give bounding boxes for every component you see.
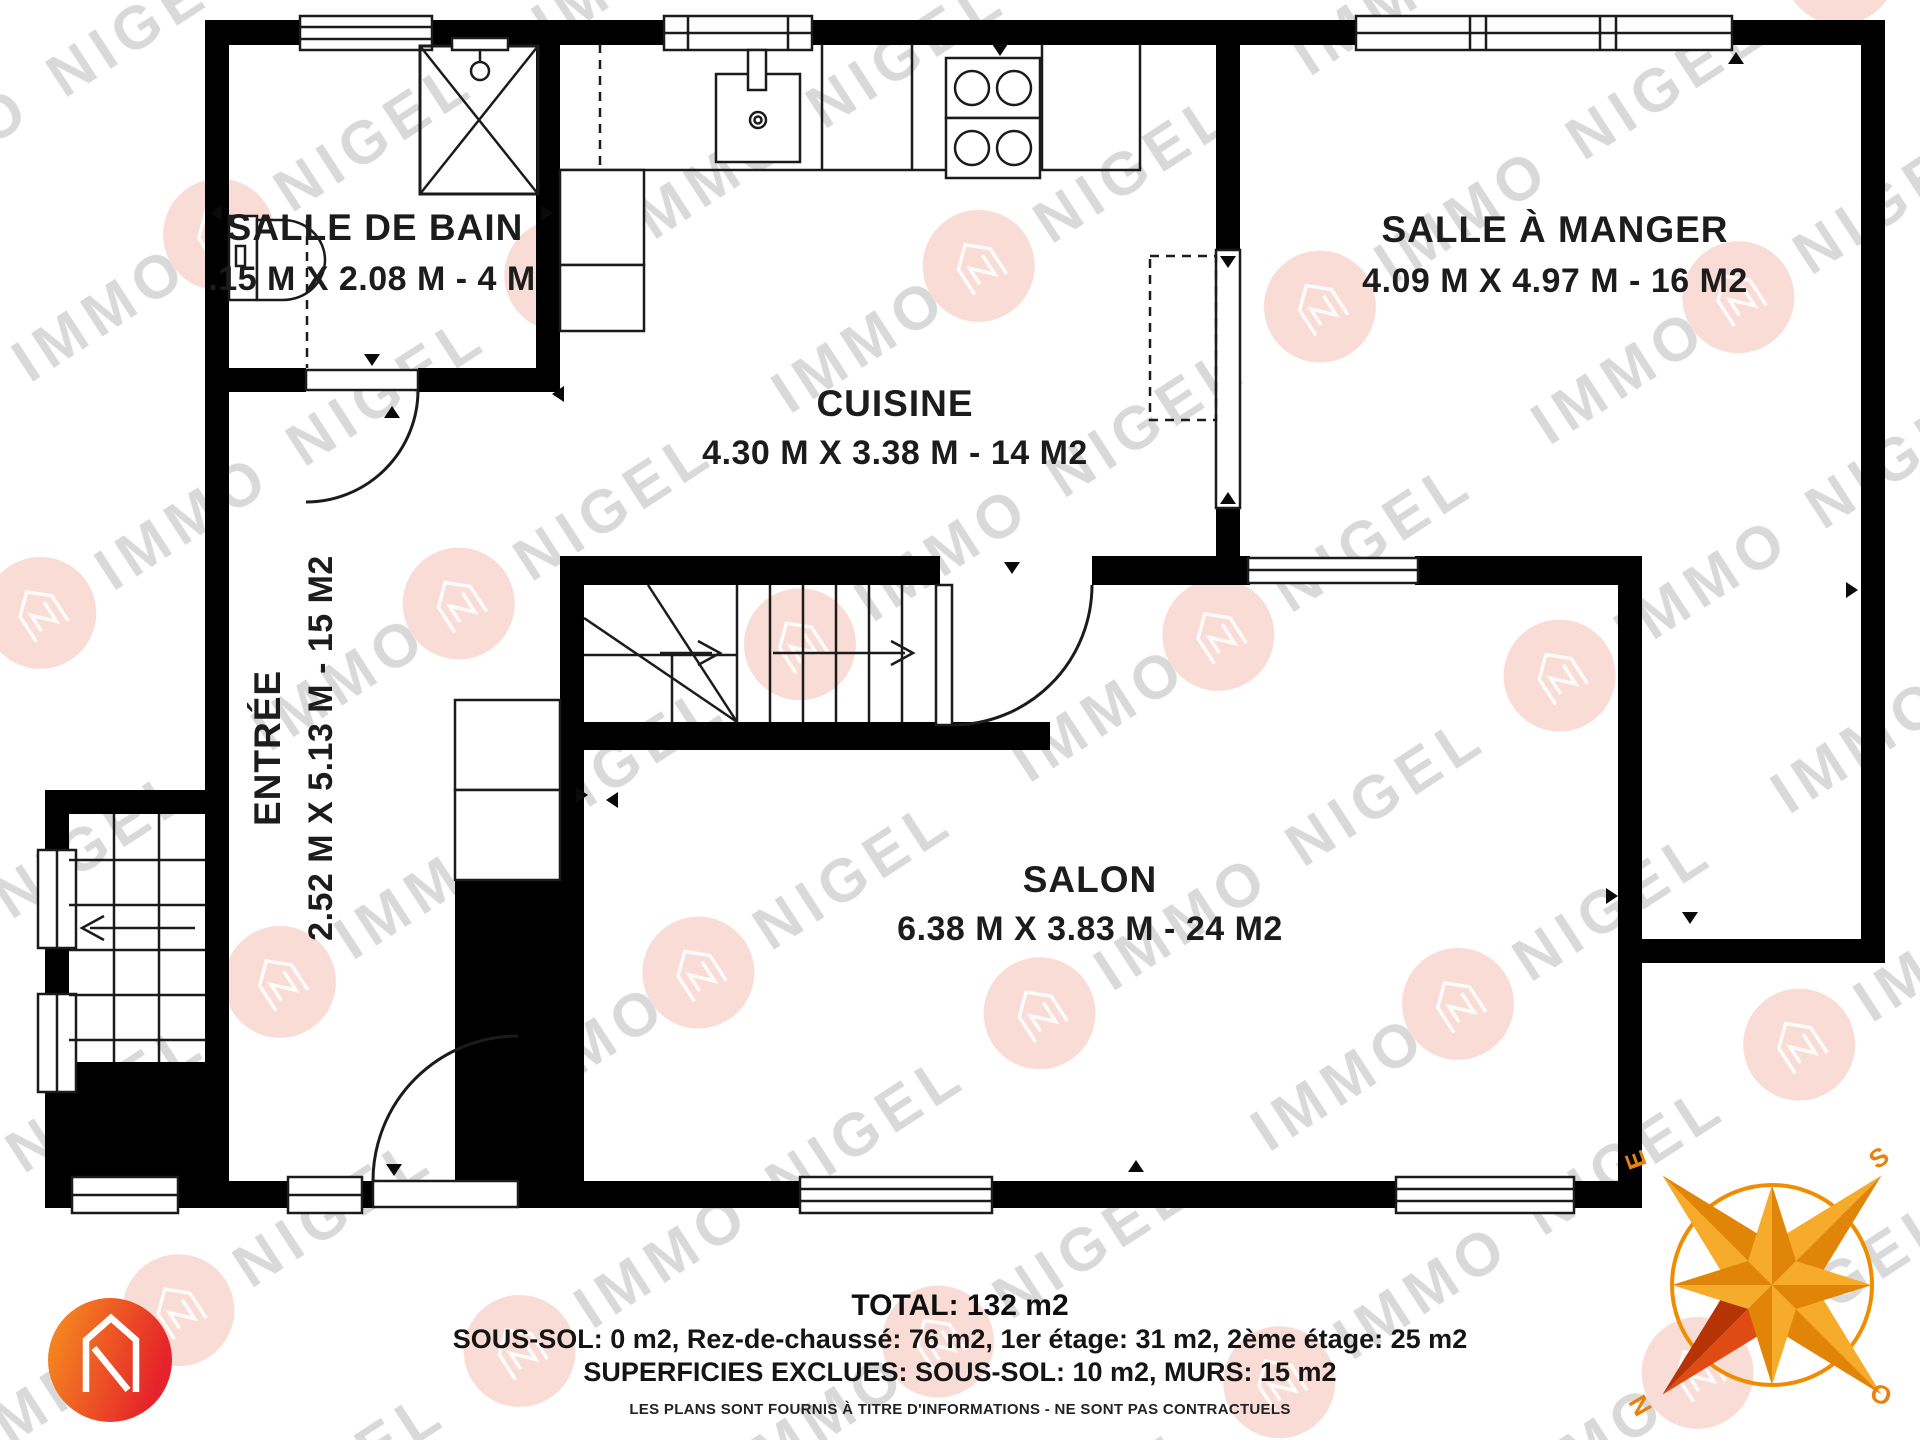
floorplan-drawing: NIGEL IMMO NIGEL IMMO — [0, 0, 1920, 1440]
svg-text:4.09 M X 4.97 M - 16 M2: 4.09 M X 4.97 M - 16 M2 — [1362, 262, 1748, 300]
window-salon-left — [800, 1177, 992, 1213]
window-bumpout-left-2 — [38, 994, 76, 1092]
window-dining — [1356, 16, 1732, 50]
wall-niche — [1216, 250, 1240, 508]
kitchen-cabinets — [560, 170, 644, 331]
summary-total: TOTAL: 132 m2 — [851, 1289, 1068, 1322]
svg-text:SALLE DE BAIN: SALLE DE BAIN — [227, 207, 524, 248]
stove-icon — [946, 58, 1040, 178]
window-kitchen — [664, 16, 812, 50]
summary-floors: SOUS-SOL: 0 m2, Rez-de-chaussé: 76 m2, 1… — [453, 1324, 1467, 1354]
svg-text:SALLE À MANGER: SALLE À MANGER — [1382, 209, 1729, 250]
brand-logo — [48, 1298, 172, 1422]
svg-text:.15 M X 2.08 M - 4 M: .15 M X 2.08 M - 4 M — [208, 260, 535, 298]
entree-closets — [455, 700, 560, 880]
window-salon-dining — [1248, 558, 1418, 583]
window-bumpout-left-1 — [38, 850, 76, 948]
floorplan-page: NIGEL IMMO NIGEL IMMO — [0, 0, 1920, 1440]
svg-text:SALON: SALON — [1023, 859, 1158, 900]
window-bathroom — [300, 16, 432, 50]
svg-text:CUISINE: CUISINE — [816, 383, 973, 424]
window-salon-right — [1396, 1177, 1574, 1213]
summary-disclaimer: LES PLANS SONT FOURNIS À TITRE D'INFORMA… — [629, 1401, 1290, 1418]
svg-text:2.52 M X 5.13 M - 15 M2: 2.52 M X 5.13 M - 15 M2 — [302, 555, 340, 941]
svg-text:4.30 M X 3.38 M - 14 M2: 4.30 M X 3.38 M - 14 M2 — [702, 434, 1088, 472]
window-entree — [288, 1177, 362, 1213]
svg-text:ENTRÉE: ENTRÉE — [247, 670, 288, 826]
window-bumpout-bottom — [72, 1177, 178, 1213]
svg-text:6.38 M X 3.83 M - 24 M2: 6.38 M X 3.83 M - 24 M2 — [897, 910, 1283, 948]
summary-excluded: SUPERFICIES EXCLUES: SOUS-SOL: 10 m2, MU… — [583, 1357, 1336, 1387]
